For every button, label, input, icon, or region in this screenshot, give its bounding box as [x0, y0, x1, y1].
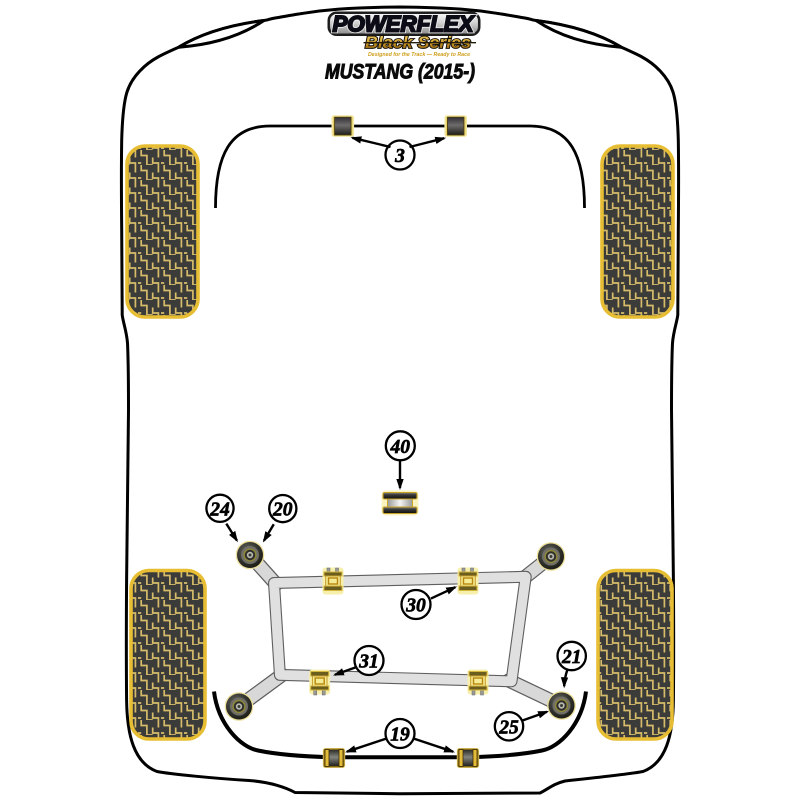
svg-text:24: 24: [209, 499, 230, 520]
svg-text:19: 19: [390, 725, 410, 746]
svg-text:31: 31: [358, 652, 379, 673]
svg-text:20: 20: [272, 500, 293, 521]
svg-text:POWERFLEX: POWERFLEX: [333, 12, 475, 37]
svg-text:30: 30: [405, 596, 426, 617]
svg-text:MUSTANG (2015-): MUSTANG (2015-): [325, 61, 475, 84]
svg-text:Designed for the Track — Ready: Designed for the Track — Ready to Race: [368, 52, 470, 58]
svg-text:25: 25: [498, 717, 519, 738]
svg-text:40: 40: [390, 437, 411, 458]
svg-text:21: 21: [561, 647, 582, 668]
svg-text:3: 3: [394, 146, 405, 167]
